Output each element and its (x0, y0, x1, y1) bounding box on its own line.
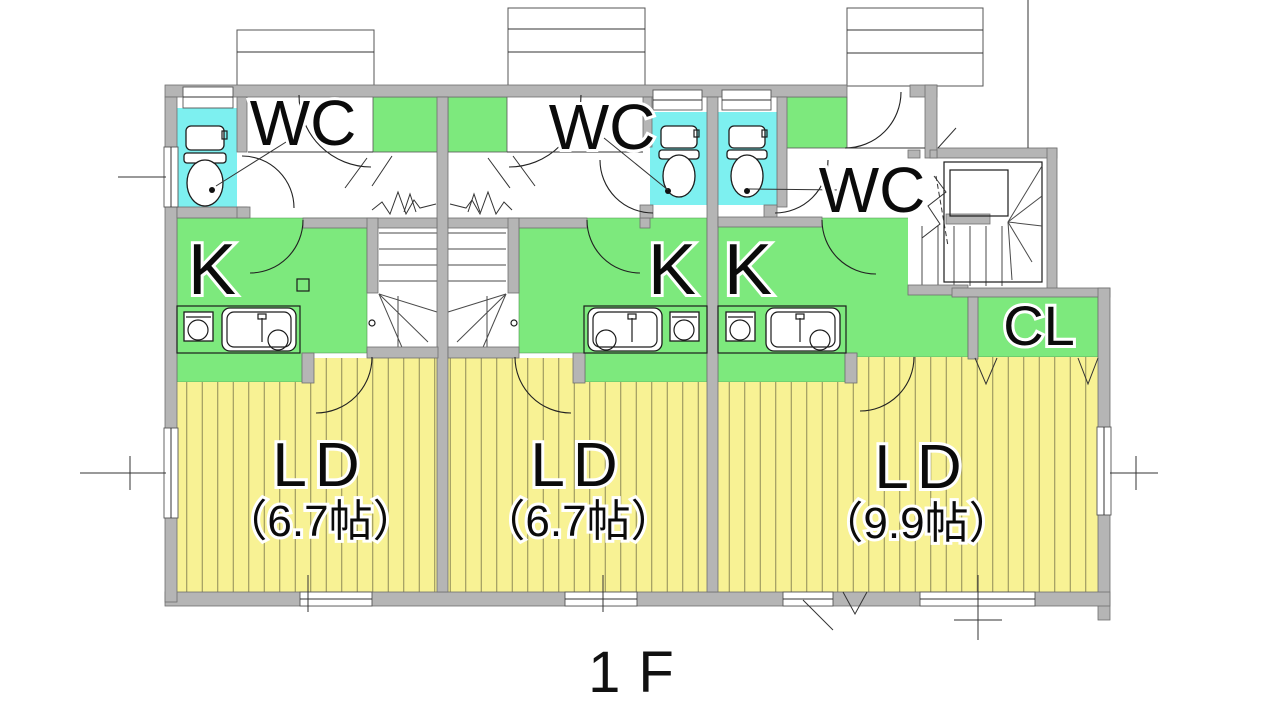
window (183, 87, 233, 108)
floor-plan-canvas: WC WC WC K K K CL LD （6.7帖） LD （6.7帖） LD… (0, 0, 1280, 720)
kitchen-label-unit-2: K (648, 230, 696, 310)
entrance-porches (237, 8, 983, 86)
living-label-unit-3: LD (874, 433, 969, 502)
window (722, 90, 771, 110)
living-label-unit-1: LD (272, 431, 367, 500)
entry-doma-unit-1 (373, 97, 440, 152)
stove-icon (726, 312, 755, 341)
window (1097, 427, 1111, 515)
entry-door-arc-unit-3 (845, 92, 901, 148)
closet-label: CL (1003, 294, 1075, 357)
window (164, 147, 178, 207)
wc-label-unit-1: WC (250, 87, 357, 159)
window (300, 592, 372, 606)
sink-icon (222, 308, 296, 351)
stove-icon (184, 312, 213, 341)
window (164, 428, 178, 518)
window (565, 592, 637, 606)
staircase-unit-1 (369, 192, 437, 352)
terrace-door (783, 592, 833, 606)
entry-doma-unit-3 (785, 97, 847, 148)
sink-icon (766, 308, 840, 351)
porch (237, 30, 374, 86)
porch (508, 8, 645, 86)
sink-icon (588, 308, 662, 351)
porch (847, 8, 983, 86)
entry-doma-unit-2 (448, 97, 507, 152)
floor-label: 1F (588, 640, 692, 705)
staircase-unit-2 (448, 192, 517, 352)
kitchen-label-unit-3: K (724, 230, 772, 310)
living-size-unit-3: （9.9帖） (819, 499, 1012, 548)
wc-label-unit-2: WC (549, 91, 656, 163)
wc-label-unit-3: WC (819, 154, 926, 226)
living-size-unit-1: （6.7帖） (223, 497, 416, 546)
living-size-unit-2: （6.7帖） (481, 497, 674, 546)
floor-plan-page: WC WC WC K K K CL LD （6.7帖） LD （6.7帖） LD… (0, 0, 1280, 720)
staircase-unit-3 (908, 162, 1047, 286)
kitchen-label-unit-1: K (188, 230, 236, 310)
window (653, 90, 702, 110)
living-label-unit-2: LD (530, 431, 625, 500)
stove-icon (670, 312, 699, 341)
wc-door-arc-unit-1 (242, 156, 294, 208)
